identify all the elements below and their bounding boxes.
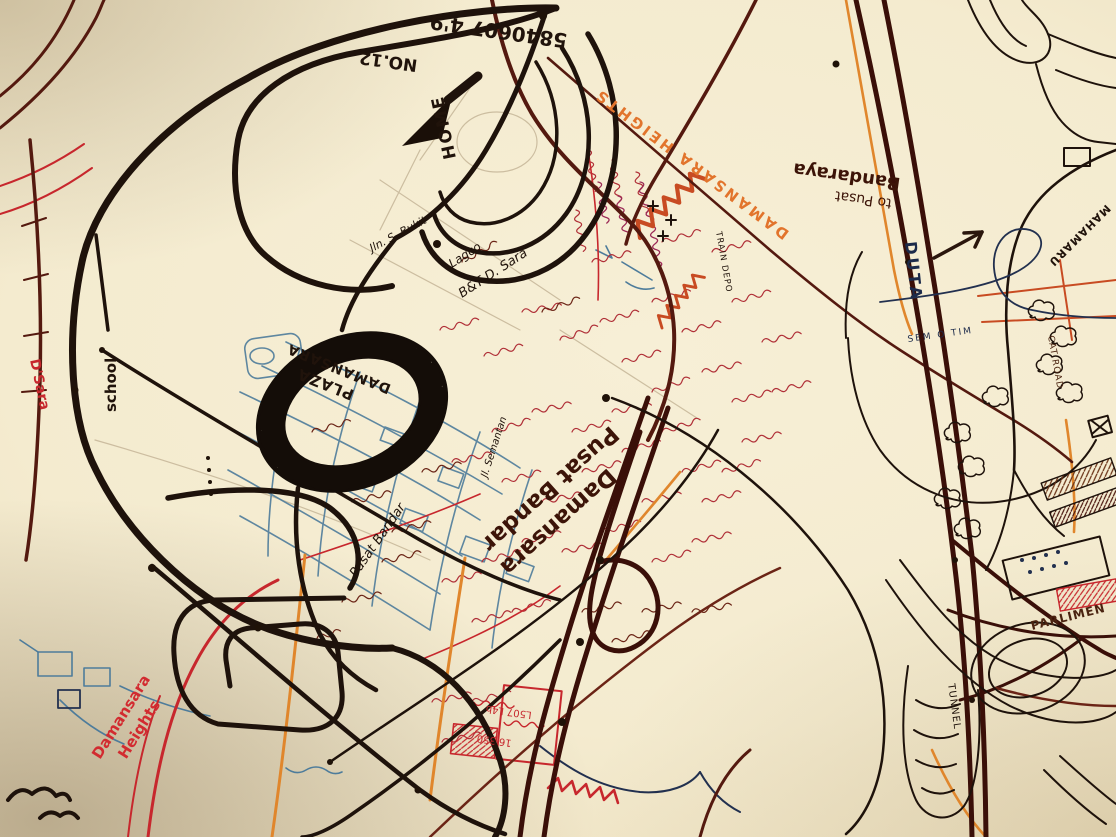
small-landmark-box	[58, 690, 80, 708]
red-note1-label: L507 L4b	[485, 703, 532, 720]
orange-roads	[272, 0, 1116, 837]
direction-arrow-icon	[934, 232, 982, 258]
jln-s-bukit-label: Jln. S. Bukit	[366, 214, 430, 256]
lagco-label: Lagco	[446, 239, 483, 270]
jl-semantan-label: Jl. Semantan	[479, 415, 510, 480]
phone-number-label: 5840607 4'9	[428, 10, 568, 53]
map-drawing: 5840607 4'9 NO.12 HOME Jln. S. Bukit Lag…	[0, 0, 1116, 837]
duta-label: DUTA	[901, 240, 926, 302]
mahameru-label: MAHAMARU	[1046, 202, 1113, 269]
maroon-scribble-labels	[301, 240, 732, 645]
home-arrow-tail	[448, 76, 478, 100]
landmarks	[58, 12, 1068, 794]
school-label: school	[102, 358, 120, 412]
train-depo-label: TRAIN DEPO	[713, 230, 734, 294]
house-number-label: NO.12	[358, 47, 419, 75]
damansara-heights-orange-label: DAMANSARA HEIGHTS	[591, 85, 793, 243]
hand-drawn-map-photo: 5840607 4'9 NO.12 HOME Jln. S. Bukit Lag…	[0, 0, 1116, 837]
to-pusat-bandaraya-label: to PusatBandaraya	[789, 158, 901, 212]
dsara-edge-label: D'Sara	[26, 358, 52, 412]
tunnel-label: TUNNEL	[945, 682, 962, 730]
